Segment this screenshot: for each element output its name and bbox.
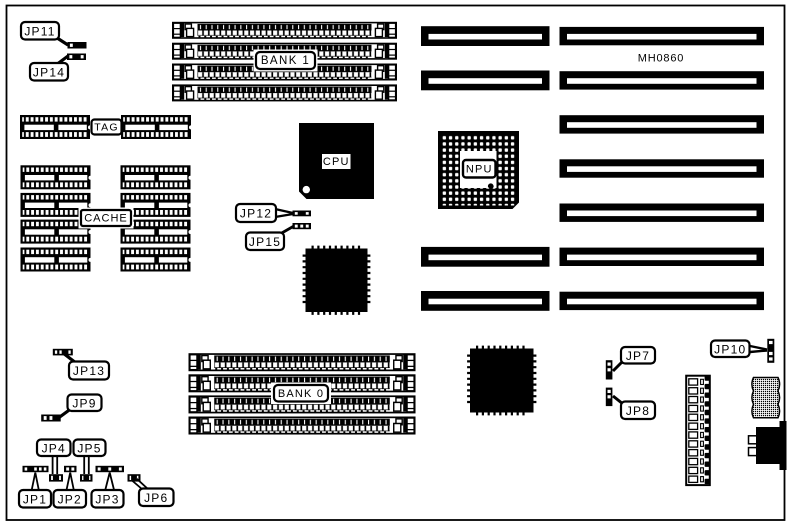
svg-text:CPU: CPU [323,156,350,168]
svg-text:BANK 1: BANK 1 [261,55,310,67]
svg-text:CACHE: CACHE [84,213,128,225]
svg-text:JP8: JP8 [626,404,650,418]
svg-text:JP12: JP12 [240,207,272,221]
svg-text:JP11: JP11 [24,24,55,38]
svg-text:JP1: JP1 [23,492,47,506]
svg-text:JP6: JP6 [144,491,168,505]
svg-text:BANK 0: BANK 0 [278,388,324,400]
svg-text:JP7: JP7 [626,349,650,363]
svg-text:JP4: JP4 [42,441,66,455]
svg-text:JP10: JP10 [714,342,746,356]
svg-text:JP5: JP5 [77,441,101,455]
svg-text:NPU: NPU [466,163,493,175]
svg-text:MH0860: MH0860 [638,53,684,65]
svg-text:JP14: JP14 [33,65,65,79]
svg-text:JP2: JP2 [58,492,82,506]
svg-text:JP9: JP9 [72,396,96,410]
svg-text:JP3: JP3 [95,492,119,506]
svg-text:TAG: TAG [94,122,118,134]
svg-text:JP15: JP15 [249,235,281,249]
svg-text:JP13: JP13 [73,364,105,378]
